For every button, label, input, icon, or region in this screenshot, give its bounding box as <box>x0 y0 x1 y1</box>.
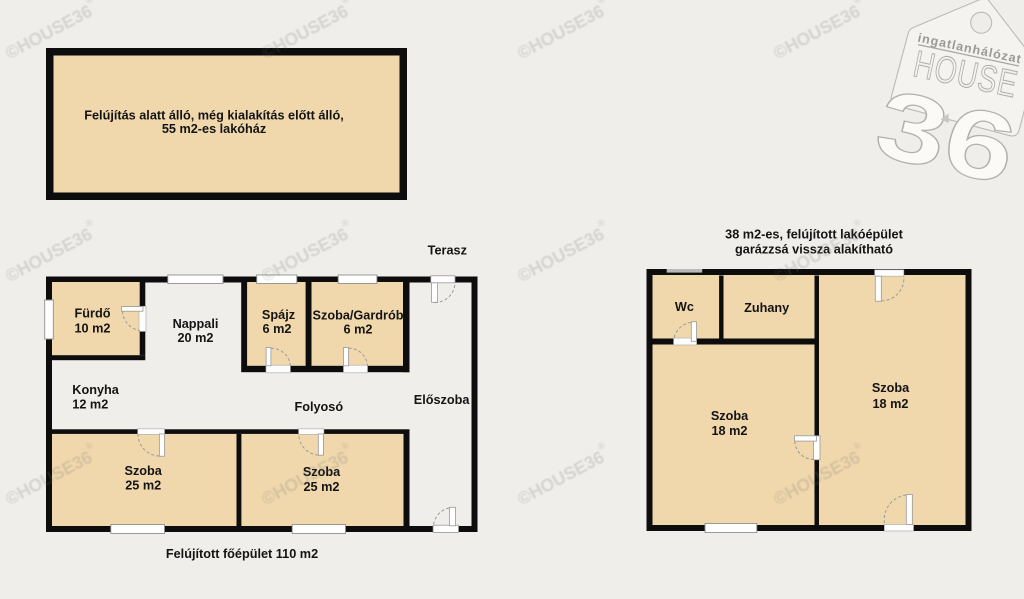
svg-text:Fürdő: Fürdő <box>75 306 111 320</box>
svg-text:6 m2: 6 m2 <box>263 322 292 336</box>
svg-text:20 m2: 20 m2 <box>178 331 214 345</box>
svg-text:10 m2: 10 m2 <box>75 321 111 335</box>
svg-text:Spájz: Spájz <box>262 308 295 322</box>
svg-text:55 m2-es lakóház: 55 m2-es lakóház <box>162 122 266 136</box>
svg-text:Konyha: Konyha <box>72 383 119 397</box>
svg-text:18 m2: 18 m2 <box>873 397 909 411</box>
svg-text:Felújítás alatt álló, még kial: Felújítás alatt álló, még kialakítás elő… <box>84 109 343 123</box>
svg-text:18 m2: 18 m2 <box>712 424 748 438</box>
svg-text:Nappali: Nappali <box>173 317 219 331</box>
svg-text:Zuhany: Zuhany <box>744 301 789 315</box>
svg-text:25 m2: 25 m2 <box>125 479 161 493</box>
svg-text:Felújított főépület 110 m2: Felújított főépület 110 m2 <box>166 547 318 561</box>
svg-text:12 m2: 12 m2 <box>72 397 108 411</box>
svg-text:Folyosó: Folyosó <box>294 400 343 414</box>
svg-text:Szoba: Szoba <box>872 381 910 395</box>
svg-text:38 m2-es, felújított lakóépüle: 38 m2-es, felújított lakóépület <box>725 227 903 241</box>
svg-text:6 m2: 6 m2 <box>344 322 373 336</box>
svg-text:Terasz: Terasz <box>428 244 467 258</box>
svg-text:Szoba: Szoba <box>711 409 749 423</box>
svg-text:Wc: Wc <box>675 300 694 314</box>
svg-text:Szoba: Szoba <box>125 464 163 478</box>
svg-text:Előszoba: Előszoba <box>414 393 471 407</box>
svg-text:Szoba/Gardrób: Szoba/Gardrób <box>313 309 404 323</box>
